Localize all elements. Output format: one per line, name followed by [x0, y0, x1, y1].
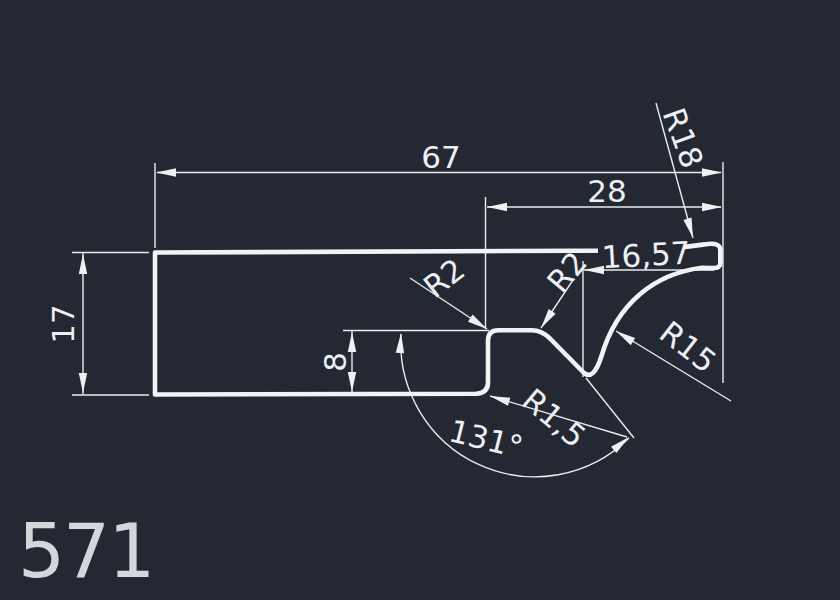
dim-step-height-label: 8: [317, 352, 353, 372]
dim-left-height-label: 17: [45, 304, 81, 343]
technical-drawing: 67 28 16,57 17 8 131° R2 R2 R1,5 R15 R18…: [0, 0, 840, 600]
cad-canvas: 67 28 16,57 17 8 131° R2 R2 R1,5 R15 R18…: [0, 0, 840, 600]
sheet-number-label: 571: [18, 508, 153, 594]
dim-total-length-label: 67: [421, 139, 460, 175]
dim-tip-length-label: 16,57: [601, 235, 692, 276]
dim-right-length-label: 28: [587, 173, 626, 209]
